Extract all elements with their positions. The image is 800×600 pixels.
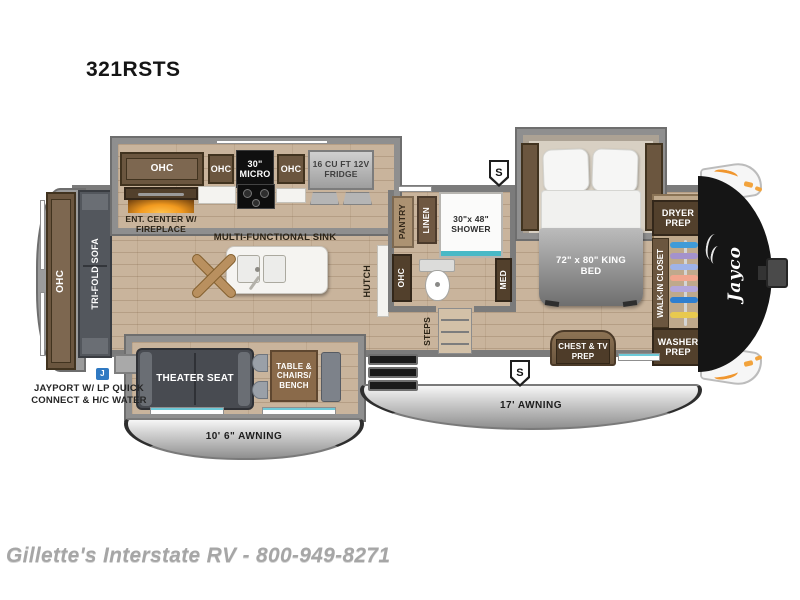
rear-ohc-label: OHC (55, 270, 67, 293)
ohc-label: OHC (211, 164, 232, 174)
fridge-drawer (310, 192, 339, 205)
sofa-armrest (82, 194, 108, 210)
chest-tv-label: CHEST & TV PREP (558, 342, 608, 360)
interior-steps (438, 308, 472, 354)
hanger (670, 297, 698, 303)
jayco-logo: Jayco (718, 206, 752, 342)
tri-fold-sofa: TRI-FOLD SOFA (78, 190, 112, 358)
fridge-label: 16 CU FT 12V FRIDGE (312, 160, 370, 180)
toilet-flush (435, 282, 440, 287)
rear-window (40, 292, 45, 356)
shower-label: 30"x 48" SHOWER (444, 215, 498, 235)
hanger (670, 312, 698, 318)
steps-label: STEPS (423, 317, 433, 346)
bath-wall-bottom-right (474, 306, 516, 312)
sofa-label: TRI-FOLD SOFA (90, 238, 100, 310)
pillow (591, 148, 638, 193)
closet-label-strip: WALK-IN CLOSET (652, 238, 669, 328)
shower-trim (441, 251, 501, 256)
refrigerator: 16 CU FT 12V FRIDGE (308, 150, 374, 190)
step-line (441, 343, 469, 345)
jayport-badge: J (96, 368, 109, 380)
ent-center-label: ENT. CENTER W/ FIREPLACE (108, 215, 214, 235)
entry-step (368, 354, 418, 365)
hanger (670, 275, 698, 281)
kitchen-ohc-large: OHC (120, 152, 204, 186)
hanger (670, 242, 698, 248)
ohc-label: OHC (397, 268, 407, 288)
pillow (542, 148, 589, 193)
floorplan-title: 321RSTS (86, 58, 181, 82)
microwave-size-label: 30" (248, 159, 263, 169)
hutch-label: HUTCH (362, 265, 372, 298)
dinette-label: TABLE & CHAIRS/ BENCH (273, 362, 315, 390)
ohc-label: OHC (151, 163, 174, 175)
hanger (670, 286, 698, 292)
tv-handle (138, 193, 184, 196)
microwave-label: MICRO (240, 169, 271, 179)
burner (243, 189, 252, 198)
theater-seat: THEATER SEAT (136, 348, 254, 410)
hanger (670, 264, 698, 270)
fridge-drawer (343, 192, 372, 205)
step-line (441, 331, 469, 333)
kitchen-ohc-small-2: OHC (277, 154, 305, 184)
speaker-badge: S (489, 160, 509, 187)
medicine-cabinet: MED (495, 258, 512, 302)
pantry-label: PANTRY (398, 204, 408, 239)
kitchen-island (226, 246, 328, 294)
toilet-bowl (425, 270, 450, 301)
rear-ohc-cabinet: OHC (46, 192, 76, 370)
burner (260, 189, 269, 198)
step-line (441, 319, 469, 321)
shower: 30"x 48" SHOWER (439, 192, 503, 258)
slide-window (262, 407, 336, 415)
dinette-table: TABLE & CHAIRS/ BENCH (270, 350, 318, 402)
hutch-label-box: HUTCH (359, 247, 375, 315)
ent-center-shelf (124, 187, 198, 200)
fireplace (128, 200, 194, 213)
slide-window (150, 407, 224, 415)
sink-label: MULTI-FUNCTIONAL SINK (180, 233, 370, 244)
microwave: 30" MICRO (236, 150, 274, 188)
dryer-prep-label: DRYER PREP (657, 208, 699, 229)
jayport-badge-letter: J (100, 369, 105, 378)
speaker-badge-letter: S (516, 367, 524, 380)
bath-ohc: OHC (392, 254, 412, 302)
counter-right (276, 188, 306, 203)
bedroom-window (618, 353, 660, 361)
counter-left (198, 186, 236, 204)
speaker-badge: S (510, 360, 530, 387)
nightstand-left (521, 143, 539, 231)
king-bed: 72" x 80" KING BED (539, 228, 643, 306)
dinette-bench (321, 352, 341, 402)
kitchen-ohc-small-1: OHC (208, 154, 234, 184)
bed-sheet (541, 190, 641, 232)
king-bed-label: 72" x 80" KING BED (552, 256, 630, 278)
dinette-chair (252, 381, 268, 399)
walk-in-closet-label: WALK-IN CLOSET (656, 249, 665, 318)
kingpin (766, 258, 788, 288)
linen-label: LINEN (422, 207, 432, 234)
awning-17-label: 17' AWNING (364, 400, 698, 412)
jayport-label: JAYPORT W/ LP QUICK CONNECT & H/C WATER (26, 383, 152, 408)
hanger (670, 253, 698, 259)
jayco-logo-text: Jayco (725, 246, 745, 302)
ohc-label: OHC (281, 164, 302, 174)
dinette-chair (252, 354, 268, 372)
washer-prep-label: WASHER PREP (654, 337, 702, 358)
med-label: MED (499, 270, 509, 290)
kitchen-slide-window (216, 140, 328, 144)
linen-closet: LINEN (417, 196, 437, 244)
floorplan-page: 321RSTS OHC TRI-FOLD SOFA OHC OHC 30" MI… (0, 0, 800, 600)
bath-top-window (398, 186, 432, 192)
rear-window (40, 200, 45, 270)
theater-armrest (238, 352, 250, 406)
entry-step (368, 380, 418, 391)
speaker-badge-letter: S (495, 167, 503, 180)
sink-basin (263, 255, 286, 283)
steps-label-box: STEPS (420, 308, 436, 354)
pantry: PANTRY (392, 196, 414, 248)
entry-step (368, 367, 418, 378)
burner (252, 199, 260, 207)
dealer-footer: Gillette's Interstate RV - 800-949-8271 (6, 544, 390, 568)
faucet (255, 267, 260, 272)
awning-10-6-label: 10' 6" AWNING (128, 431, 360, 443)
dryer-prep: DRYER PREP (652, 200, 704, 236)
awning-10-6: 10' 6" AWNING (124, 418, 364, 460)
cooktop (237, 184, 275, 209)
chest-label-box: CHEST & TV PREP (556, 339, 610, 364)
sofa-armrest (82, 338, 108, 354)
theater-seat-label: THEATER SEAT (156, 373, 234, 385)
